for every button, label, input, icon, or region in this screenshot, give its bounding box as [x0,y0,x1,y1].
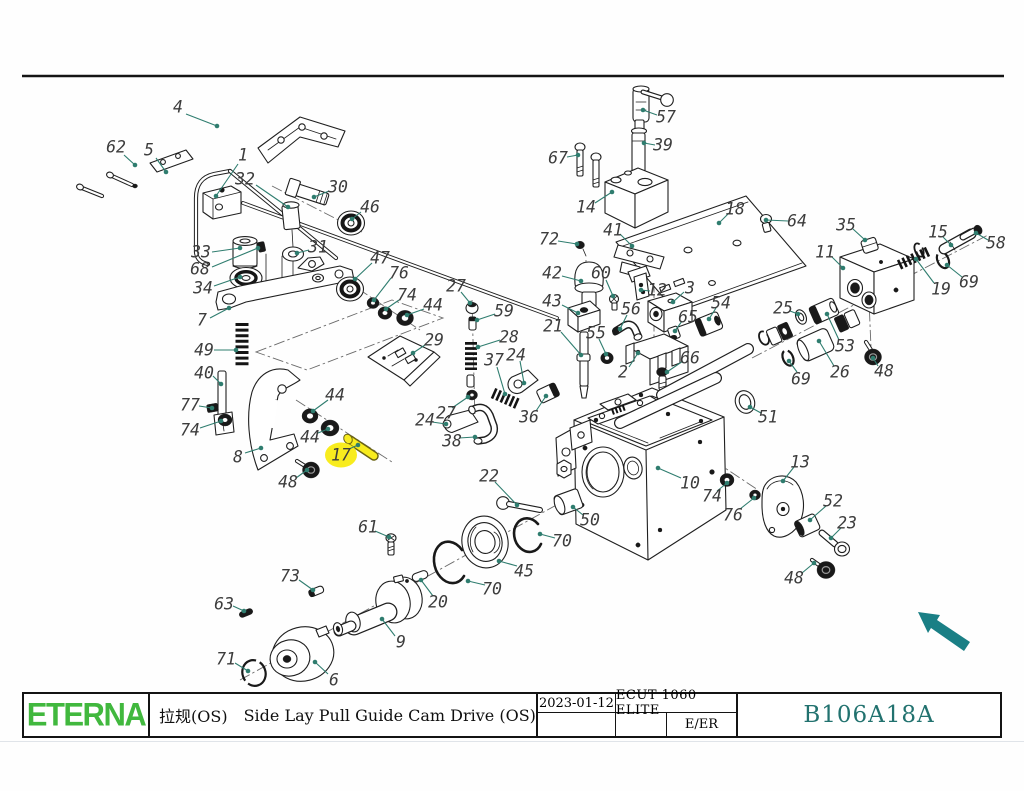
leader-dot-37 [503,392,508,397]
leader-dot-14 [610,190,615,195]
part-label-18: 18 [725,200,745,219]
leader-dot-41 [630,244,635,249]
leader-line-73 [299,580,313,590]
leader-dot-63 [242,609,247,614]
part-label-10: 10 [680,474,700,493]
part-label-25: 25 [773,299,793,318]
leader-dot-76 [372,298,377,303]
part-label-39: 39 [652,136,673,155]
leader-dot-77 [210,406,215,411]
drawing-number: B106A18A [738,694,1000,736]
part-label-46: 46 [360,198,380,217]
leader-dot-26 [817,339,822,344]
exploded-parts-drawing-page: 4625132304633683134749407774848444417242… [0,0,1024,791]
leader-dot-4 [215,124,220,129]
leader-dot-73 [311,588,316,593]
leader-line-37 [497,367,505,394]
part-label-38: 38 [441,432,462,451]
part-label-34: 34 [192,279,213,298]
part-snapring-71 [239,657,270,689]
leader-dot-52 [808,518,813,523]
part-bearing-47 [337,277,364,301]
leader-dot-40 [219,382,224,387]
part-screws-62 [76,171,138,196]
machine-model: ECUT 1060 ELITE [616,694,736,713]
leader-dot-58 [974,231,979,236]
leader-dot-68 [256,246,261,251]
leader-dot-2 [636,351,641,356]
leader-dot-34 [238,275,243,280]
leader-line-59 [477,314,495,320]
part-label-1: 1 [238,146,248,165]
part-label-54: 54 [711,294,731,313]
part-label-48: 48 [874,362,894,381]
part-label-27: 27 [436,404,456,423]
leader-dot-44 [326,427,331,432]
part-label-68: 68 [190,260,210,279]
part-label-5: 5 [144,141,154,160]
leader-dot-64 [764,218,769,223]
leader-dot-11 [841,266,846,271]
part-label-65: 65 [678,308,698,327]
leader-dot-12 [639,288,644,293]
part-shaft-9 [332,574,426,636]
date-cell: 2023-01-12 [538,694,616,736]
leader-dot-13 [781,479,786,484]
part-label-6: 6 [329,671,339,690]
leader-dot-23 [829,536,834,541]
part-label-74: 74 [702,487,722,506]
leader-dot-6 [313,660,318,665]
part-label-48: 48 [278,473,298,492]
leader-dot-43 [576,311,581,316]
leader-dot-48 [305,468,310,473]
leader-dot-19 [914,257,919,262]
part-label-64: 64 [787,212,807,231]
eterna-logo: ETERNA [27,696,145,734]
leader-dot-76 [752,496,757,501]
part-label-50: 50 [580,511,600,530]
drawing-title-en: Side Lay Pull Guide Cam Drive (OS) [244,706,536,725]
leader-dot-65 [673,329,678,334]
part-label-7: 7 [197,311,207,330]
part-bushing-pair-left [766,322,794,346]
leader-dot-36 [544,394,549,399]
part-label-2: 2 [618,363,628,382]
part-label-29: 29 [424,331,444,350]
part-bushing-36 [536,382,560,403]
part-label-24: 24 [506,346,526,365]
leader-dot-24 [522,381,527,386]
leader-dot-1 [214,194,219,199]
leader-dot-18 [717,221,722,226]
part-label-11: 11 [815,243,835,262]
machine-cell-empty [616,713,667,736]
part-label-74: 74 [397,286,417,305]
leader-dot-45 [497,559,502,564]
part-label-58: 58 [986,234,1006,253]
part-bushing-44c [397,310,414,325]
part-label-26: 26 [830,363,850,382]
part-label-49: 49 [194,341,214,360]
part-label-72: 72 [539,230,559,249]
part-pin-27-mid [467,375,474,387]
leader-line-4 [186,114,217,126]
part-bracket-8 [249,369,300,470]
leader-dot-54 [707,317,712,322]
leader-dot-74 [219,419,224,424]
part-label-14: 14 [576,198,596,217]
part-ring-51 [732,388,758,416]
leader-dot-56 [618,327,623,332]
leader-dot-59 [475,318,480,323]
leader-dot-7 [227,306,232,311]
bottom-hairline [0,741,1024,742]
part-label-37: 37 [483,351,504,370]
part-label-69: 69 [959,273,979,292]
part-label-70: 70 [552,532,572,551]
leader-dot-47 [353,277,358,282]
leader-dot-27 [468,301,473,306]
leader-dot-44 [405,313,410,318]
part-label-48: 48 [784,569,804,588]
part-label-27: 27 [446,277,466,296]
part-bolt-23 [822,533,850,556]
leader-dot-57 [641,108,646,113]
date-cell-empty [538,713,615,736]
part-label-9: 9 [396,633,406,652]
logo-cell: ETERNA [24,694,150,736]
part-label-43: 43 [542,292,562,311]
part-label-40: 40 [194,364,214,383]
part-elbow-56 [611,325,642,342]
part-snapring-69a [780,349,796,368]
part-label-76: 76 [723,506,743,525]
part-label-53: 53 [835,337,855,356]
part-bushing-54 [695,311,724,337]
part-label-77: 77 [180,396,200,415]
part-label-70: 70 [482,580,502,599]
part-label-56: 56 [621,300,641,319]
machine-cell: ECUT 1060 ELITE E/ER [616,694,738,736]
leader-dot-10 [656,466,661,471]
leader-dot-69 [787,359,792,364]
part-label-22: 22 [479,467,499,486]
part-label-12: 12 [647,281,667,300]
part-label-42: 42 [542,264,562,283]
part-pin-59 [469,317,476,330]
exploded-diagram: 4625132304633683134749407774848444417242… [0,0,1024,791]
leader-dot-44 [311,409,316,414]
part-label-3: 3 [684,279,695,298]
leader-dot-48 [871,356,876,361]
part-label-19: 19 [931,280,951,299]
part-label-44: 44 [423,296,443,315]
part-bearing-45 [457,512,513,572]
part-label-35: 35 [835,216,856,235]
leader-dot-38 [473,435,478,440]
leader-dot-39 [642,141,647,146]
part-label-8: 8 [233,448,243,467]
part-label-24: 24 [415,411,435,430]
leader-dot-70 [538,532,543,537]
leader-dot-28 [476,345,481,350]
leader-dot-9 [380,617,385,622]
part-label-31: 31 [307,238,328,257]
part-label-60: 60 [591,264,611,283]
leader-line-72 [558,241,577,244]
leader-dot-27 [466,395,471,400]
leader-dot-69 [945,263,950,268]
part-label-4: 4 [173,98,183,117]
leader-dot-74 [384,307,389,312]
leader-dot-61 [387,535,392,540]
part-label-36: 36 [518,408,539,427]
leader-dot-48 [812,561,817,566]
part-label-55: 55 [586,324,606,343]
leader-line-28 [478,340,500,347]
part-label-57: 57 [656,108,676,127]
leader-dot-72 [575,242,580,247]
leader-dot-15 [949,243,954,248]
leader-dot-22 [515,503,520,508]
part-label-51: 51 [758,408,778,427]
part-snapring-70b [514,518,541,552]
leader-dot-46 [350,217,355,222]
part-label-76: 76 [389,264,409,283]
part-label-44: 44 [325,386,345,405]
part-screw-58 [963,224,984,237]
part-bracket-2 [626,334,688,385]
part-label-15: 15 [928,223,948,242]
drawing-date: 2023-01-12 [538,694,615,713]
leader-dot-42 [579,279,584,284]
direction-arrow [918,612,970,651]
drawing-title-cn: 拉规(OS) [159,703,228,727]
part-label-69: 69 [791,370,811,389]
part-key-73 [308,585,325,597]
leader-dot-70 [466,579,471,584]
part-label-59: 59 [494,302,514,321]
part-plate-5 [150,150,193,172]
part-label-73: 73 [280,567,300,586]
leader-dot-31 [295,251,300,256]
leader-dot-50 [571,505,576,510]
leader-dot-8 [259,446,264,451]
part-nut-27-top [466,303,478,314]
leader-dot-49 [234,348,239,353]
leader-dot-35 [863,238,868,243]
part-label-41: 41 [603,221,623,240]
part-ring-25 [793,308,808,326]
part-label-44: 44 [300,428,320,447]
part-screws-67 [575,143,601,187]
part-block-14 [605,168,668,228]
leader-dot-17 [356,443,361,448]
leader-dot-32 [286,205,291,210]
revision-code: E/ER [667,713,736,736]
leader-dot-33 [238,246,243,251]
leader-dot-74 [725,481,730,486]
leader-dot-53 [825,312,830,317]
leader-dot-5 [164,170,169,175]
title-block: ETERNA 拉规(OS) Side Lay Pull Guide Cam Dr… [22,692,1002,738]
part-label-61: 61 [358,518,378,537]
leader-dot-21 [579,353,584,358]
leader-dot-3 [671,300,676,305]
part-label-74: 74 [180,421,200,440]
part-bracket-4 [258,117,345,163]
part-label-23: 23 [837,514,857,533]
part-label-20: 20 [428,593,448,612]
part-label-47: 47 [370,249,390,268]
leader-dot-67 [576,153,581,158]
part-washer-19 [912,242,925,258]
part-label-45: 45 [514,562,534,581]
part-label-30: 30 [327,178,348,197]
part-label-67: 67 [548,149,568,168]
leader-dot-29 [411,351,416,356]
part-label-32: 32 [234,170,255,189]
part-stud-32 [282,202,300,247]
part-label-17: 17 [331,446,351,465]
leader-line-21 [561,332,581,355]
part-label-71: 71 [216,650,236,669]
part-label-62: 62 [106,138,126,157]
leader-dot-60 [611,294,616,299]
leader-dot-51 [748,405,753,410]
leader-dot-20 [419,578,424,583]
part-label-21: 21 [543,317,563,336]
drawing-title-cell: 拉规(OS) Side Lay Pull Guide Cam Drive (OS… [150,694,538,736]
leader-dot-71 [246,669,251,674]
part-label-52: 52 [823,492,843,511]
leader-dot-25 [796,312,801,317]
part-label-63: 63 [214,595,234,614]
leader-dot-66 [665,370,670,375]
part-block-11 [840,244,914,314]
leader-dot-30 [312,195,317,200]
leader-dot-55 [604,352,609,357]
part-label-13: 13 [790,453,810,472]
part-label-28: 28 [499,328,519,347]
leader-dot-62 [133,163,138,168]
part-snapring-70a [434,542,464,583]
part-label-66: 66 [680,349,700,368]
